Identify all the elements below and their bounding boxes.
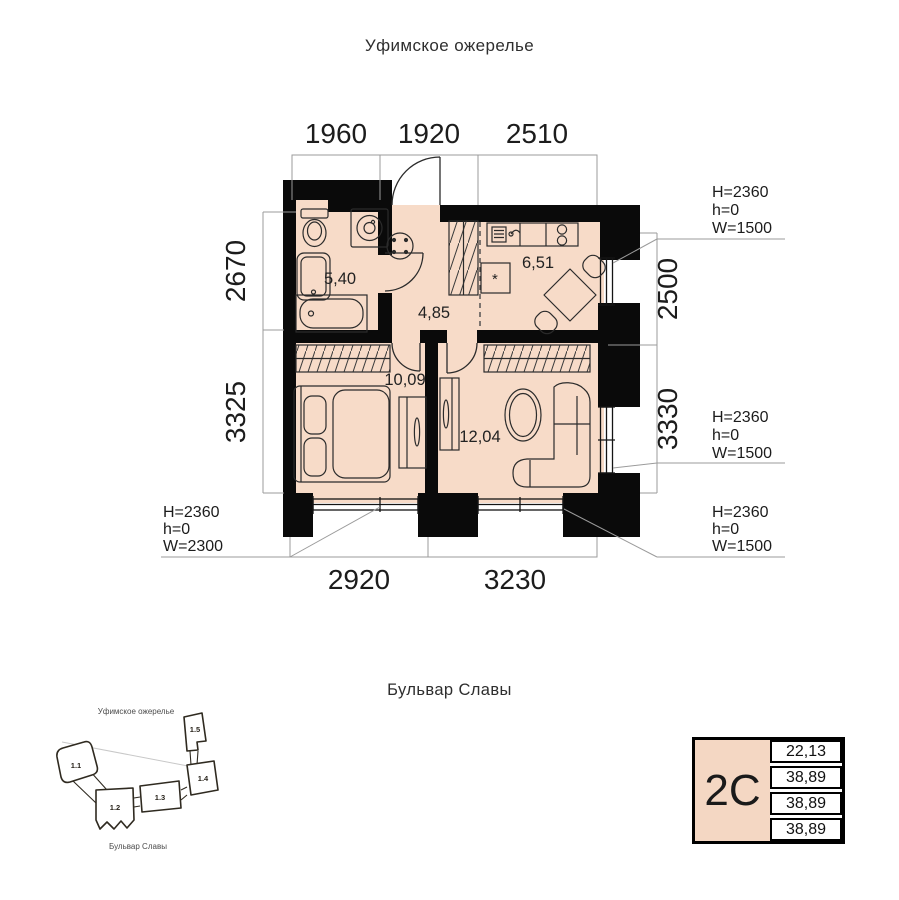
minimap-street-bottom: Бульвар Славы <box>109 842 167 851</box>
hall-wardrobe <box>449 221 478 295</box>
connector <box>181 787 187 800</box>
area-living-room: 12,04 <box>459 428 500 446</box>
svg-text:1.3: 1.3 <box>155 793 165 802</box>
minimap-building-1-3[interactable]: 1.3 <box>140 781 181 812</box>
unit-area-value: 38,89 <box>770 766 842 789</box>
connector <box>134 797 140 807</box>
area-bathroom: 5,40 <box>324 270 356 288</box>
dim-top-right: 2510 <box>506 118 568 149</box>
svg-text:H=2360: H=2360 <box>712 504 769 521</box>
svg-text:1.4: 1.4 <box>198 774 209 783</box>
dim-left-upper: 2670 <box>220 240 251 302</box>
svg-text:1.2: 1.2 <box>110 803 120 812</box>
unit-area-value: 38,89 <box>770 818 842 841</box>
svg-text:1.5: 1.5 <box>190 725 200 734</box>
bedroom-wardrobe <box>296 345 390 372</box>
window-living-right <box>598 407 615 473</box>
dim-left-lower: 3325 <box>220 381 251 443</box>
dim-bottom-left: 2920 <box>328 564 390 595</box>
svg-text:W=1500: W=1500 <box>712 445 772 462</box>
svg-text:1.1: 1.1 <box>71 761 81 770</box>
minimap-building-1-4[interactable]: 1.4 <box>187 761 218 795</box>
fridge-symbol: * <box>492 271 498 288</box>
svg-text:h=0: h=0 <box>712 202 739 219</box>
minimap-street-top: Уфимское ожерелье <box>98 707 175 716</box>
dim-right-upper: 2500 <box>652 258 683 320</box>
svg-text:H=2360: H=2360 <box>712 184 769 201</box>
dim-right-lower: 3330 <box>652 388 683 450</box>
living-wardrobe <box>484 345 590 372</box>
area-kitchen: 6,51 <box>522 254 554 272</box>
annotation-bottom-left: H=2360 h=0 W=2300 <box>163 504 223 555</box>
svg-text:h=0: h=0 <box>712 427 739 444</box>
minimap-building-1-2[interactable]: 1.2 <box>96 788 134 829</box>
minimap-building-1-5[interactable]: 1.5 <box>184 713 206 751</box>
minimap-svg: Уфимское ожерелье 1.1 1.2 1.3 1.4 1.5 Бу… <box>30 698 245 860</box>
dim-top-middle: 1920 <box>398 118 460 149</box>
area-bedroom: 10,09 <box>384 371 425 389</box>
svg-text:W=2300: W=2300 <box>163 538 223 555</box>
dim-bottom-right: 3230 <box>484 564 546 595</box>
unit-area-value: 22,13 <box>770 740 842 763</box>
unit-values-column: 22,13 38,89 38,89 38,89 <box>770 740 842 841</box>
annotation-mid-right: H=2360 h=0 W=1500 <box>712 409 772 462</box>
annotation-top-right: H=2360 h=0 W=1500 <box>712 184 772 237</box>
kitchen-floor <box>480 222 604 332</box>
window-bedroom <box>313 496 418 514</box>
annotation-bottom-right: H=2360 h=0 W=1500 <box>712 504 772 555</box>
entrance-door <box>392 157 440 205</box>
window-kitchen <box>598 258 615 305</box>
unit-type-label: 2С <box>695 740 770 841</box>
area-hallway: 4,85 <box>418 304 450 322</box>
unit-area-value: 38,89 <box>770 792 842 815</box>
floorplan-page: Уфимское ожерелье <box>0 0 899 900</box>
svg-text:h=0: h=0 <box>712 521 739 538</box>
bathroom-door-gap <box>378 253 392 295</box>
street-name-top: Уфимское ожерелье <box>0 36 899 56</box>
window-living-bottom <box>478 496 563 514</box>
svg-text:H=2360: H=2360 <box>163 504 220 521</box>
svg-text:h=0: h=0 <box>163 521 190 538</box>
floorplan-svg: * <box>130 95 800 605</box>
minimap-building-1-1[interactable]: 1.1 <box>57 742 98 783</box>
svg-text:H=2360: H=2360 <box>712 409 769 426</box>
svg-text:W=1500: W=1500 <box>712 538 772 555</box>
dim-top-left: 1960 <box>305 118 367 149</box>
svg-text:W=1500: W=1500 <box>712 220 772 237</box>
unit-info-card: 2С 22,13 38,89 38,89 38,89 <box>692 737 845 844</box>
